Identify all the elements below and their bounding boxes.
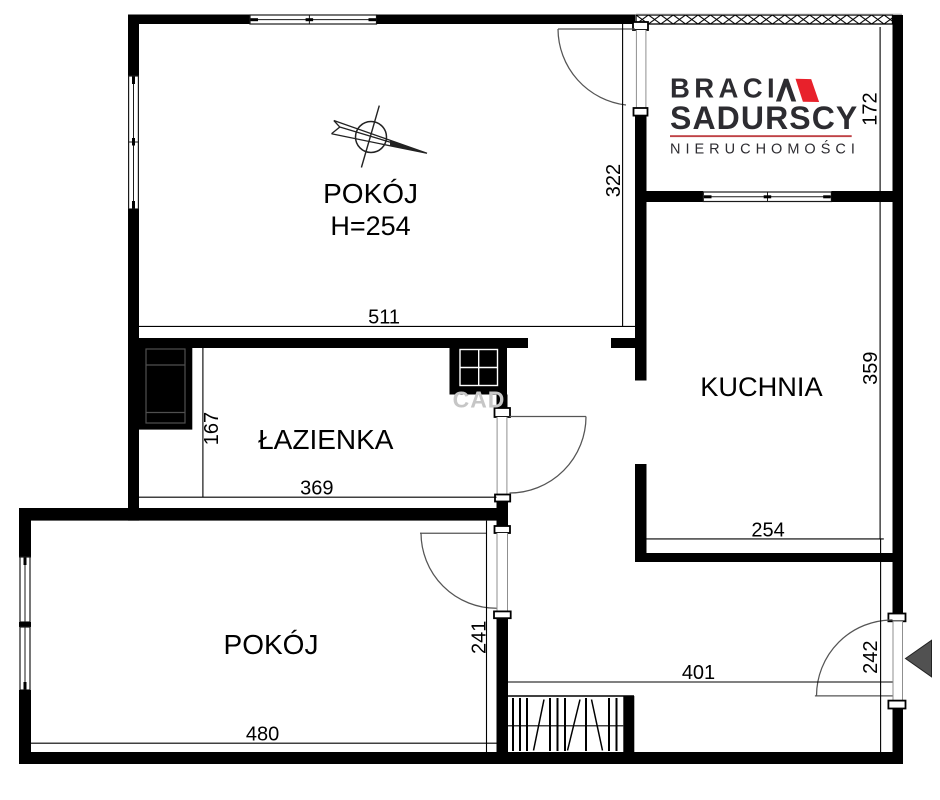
svg-text:NIERUCHOMOŚCI: NIERUCHOMOŚCI	[670, 140, 860, 158]
svg-text:POKÓJ: POKÓJ	[323, 178, 418, 209]
svg-text:SADURSCY: SADURSCY	[670, 100, 858, 136]
svg-text:ŁAZIENKA: ŁAZIENKA	[258, 424, 394, 455]
svg-text:CAD: CAD	[453, 387, 506, 413]
svg-text:BRACI: BRACI	[670, 73, 779, 104]
svg-text:369: 369	[300, 478, 333, 500]
svg-text:242: 242	[860, 641, 882, 674]
svg-text:359: 359	[860, 352, 882, 385]
svg-text:KUCHNIA: KUCHNIA	[700, 371, 823, 402]
svg-text:401: 401	[682, 662, 715, 684]
svg-text:POKÓJ: POKÓJ	[224, 629, 319, 660]
svg-text:241: 241	[469, 621, 491, 654]
svg-text:167: 167	[201, 412, 223, 445]
svg-text:H=254: H=254	[330, 211, 410, 241]
svg-text:172: 172	[860, 92, 882, 125]
svg-text:511: 511	[368, 307, 400, 329]
svg-text:254: 254	[751, 519, 784, 541]
svg-text:322: 322	[603, 164, 625, 197]
svg-text:480: 480	[246, 724, 279, 746]
